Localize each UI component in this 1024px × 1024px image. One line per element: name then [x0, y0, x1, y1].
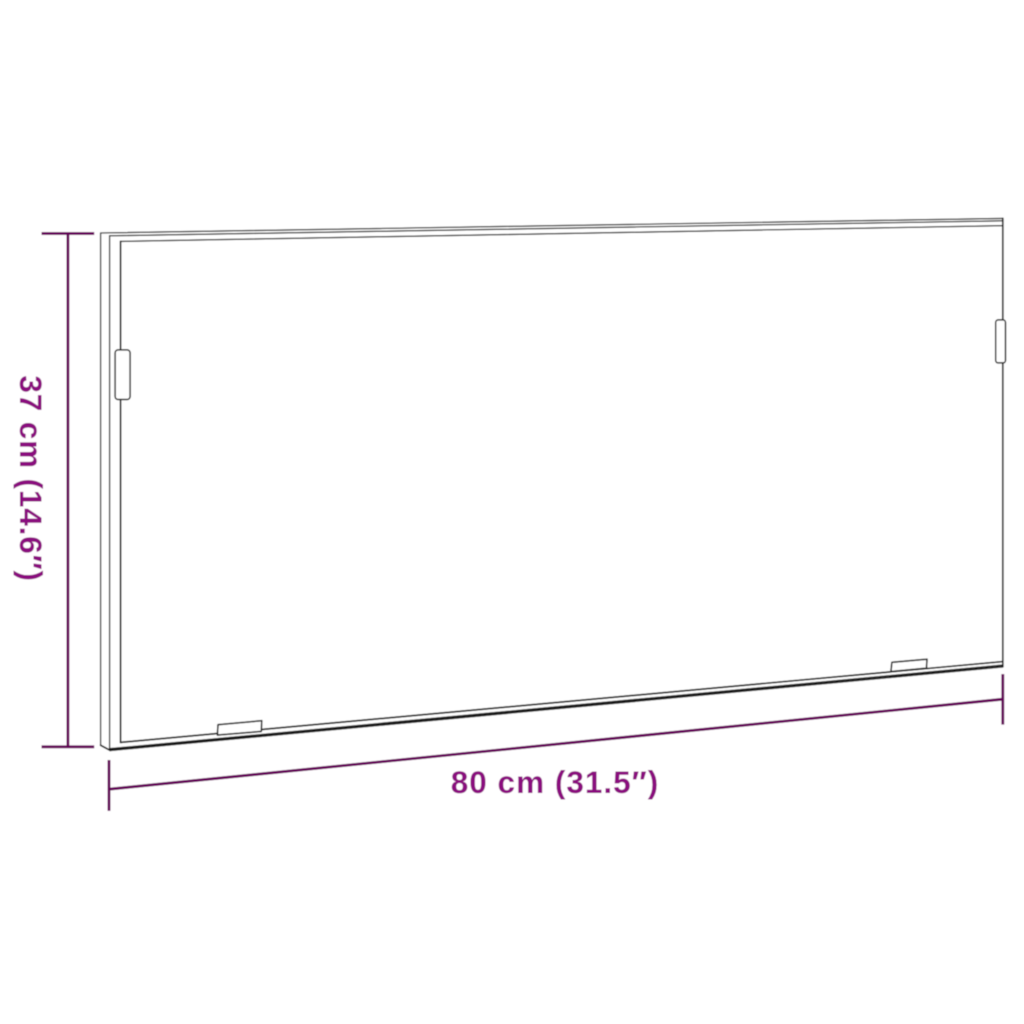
svg-text:37 cm (14.6″): 37 cm (14.6″): [13, 375, 49, 582]
svg-text:80 cm (31.5″): 80 cm (31.5″): [451, 764, 659, 800]
